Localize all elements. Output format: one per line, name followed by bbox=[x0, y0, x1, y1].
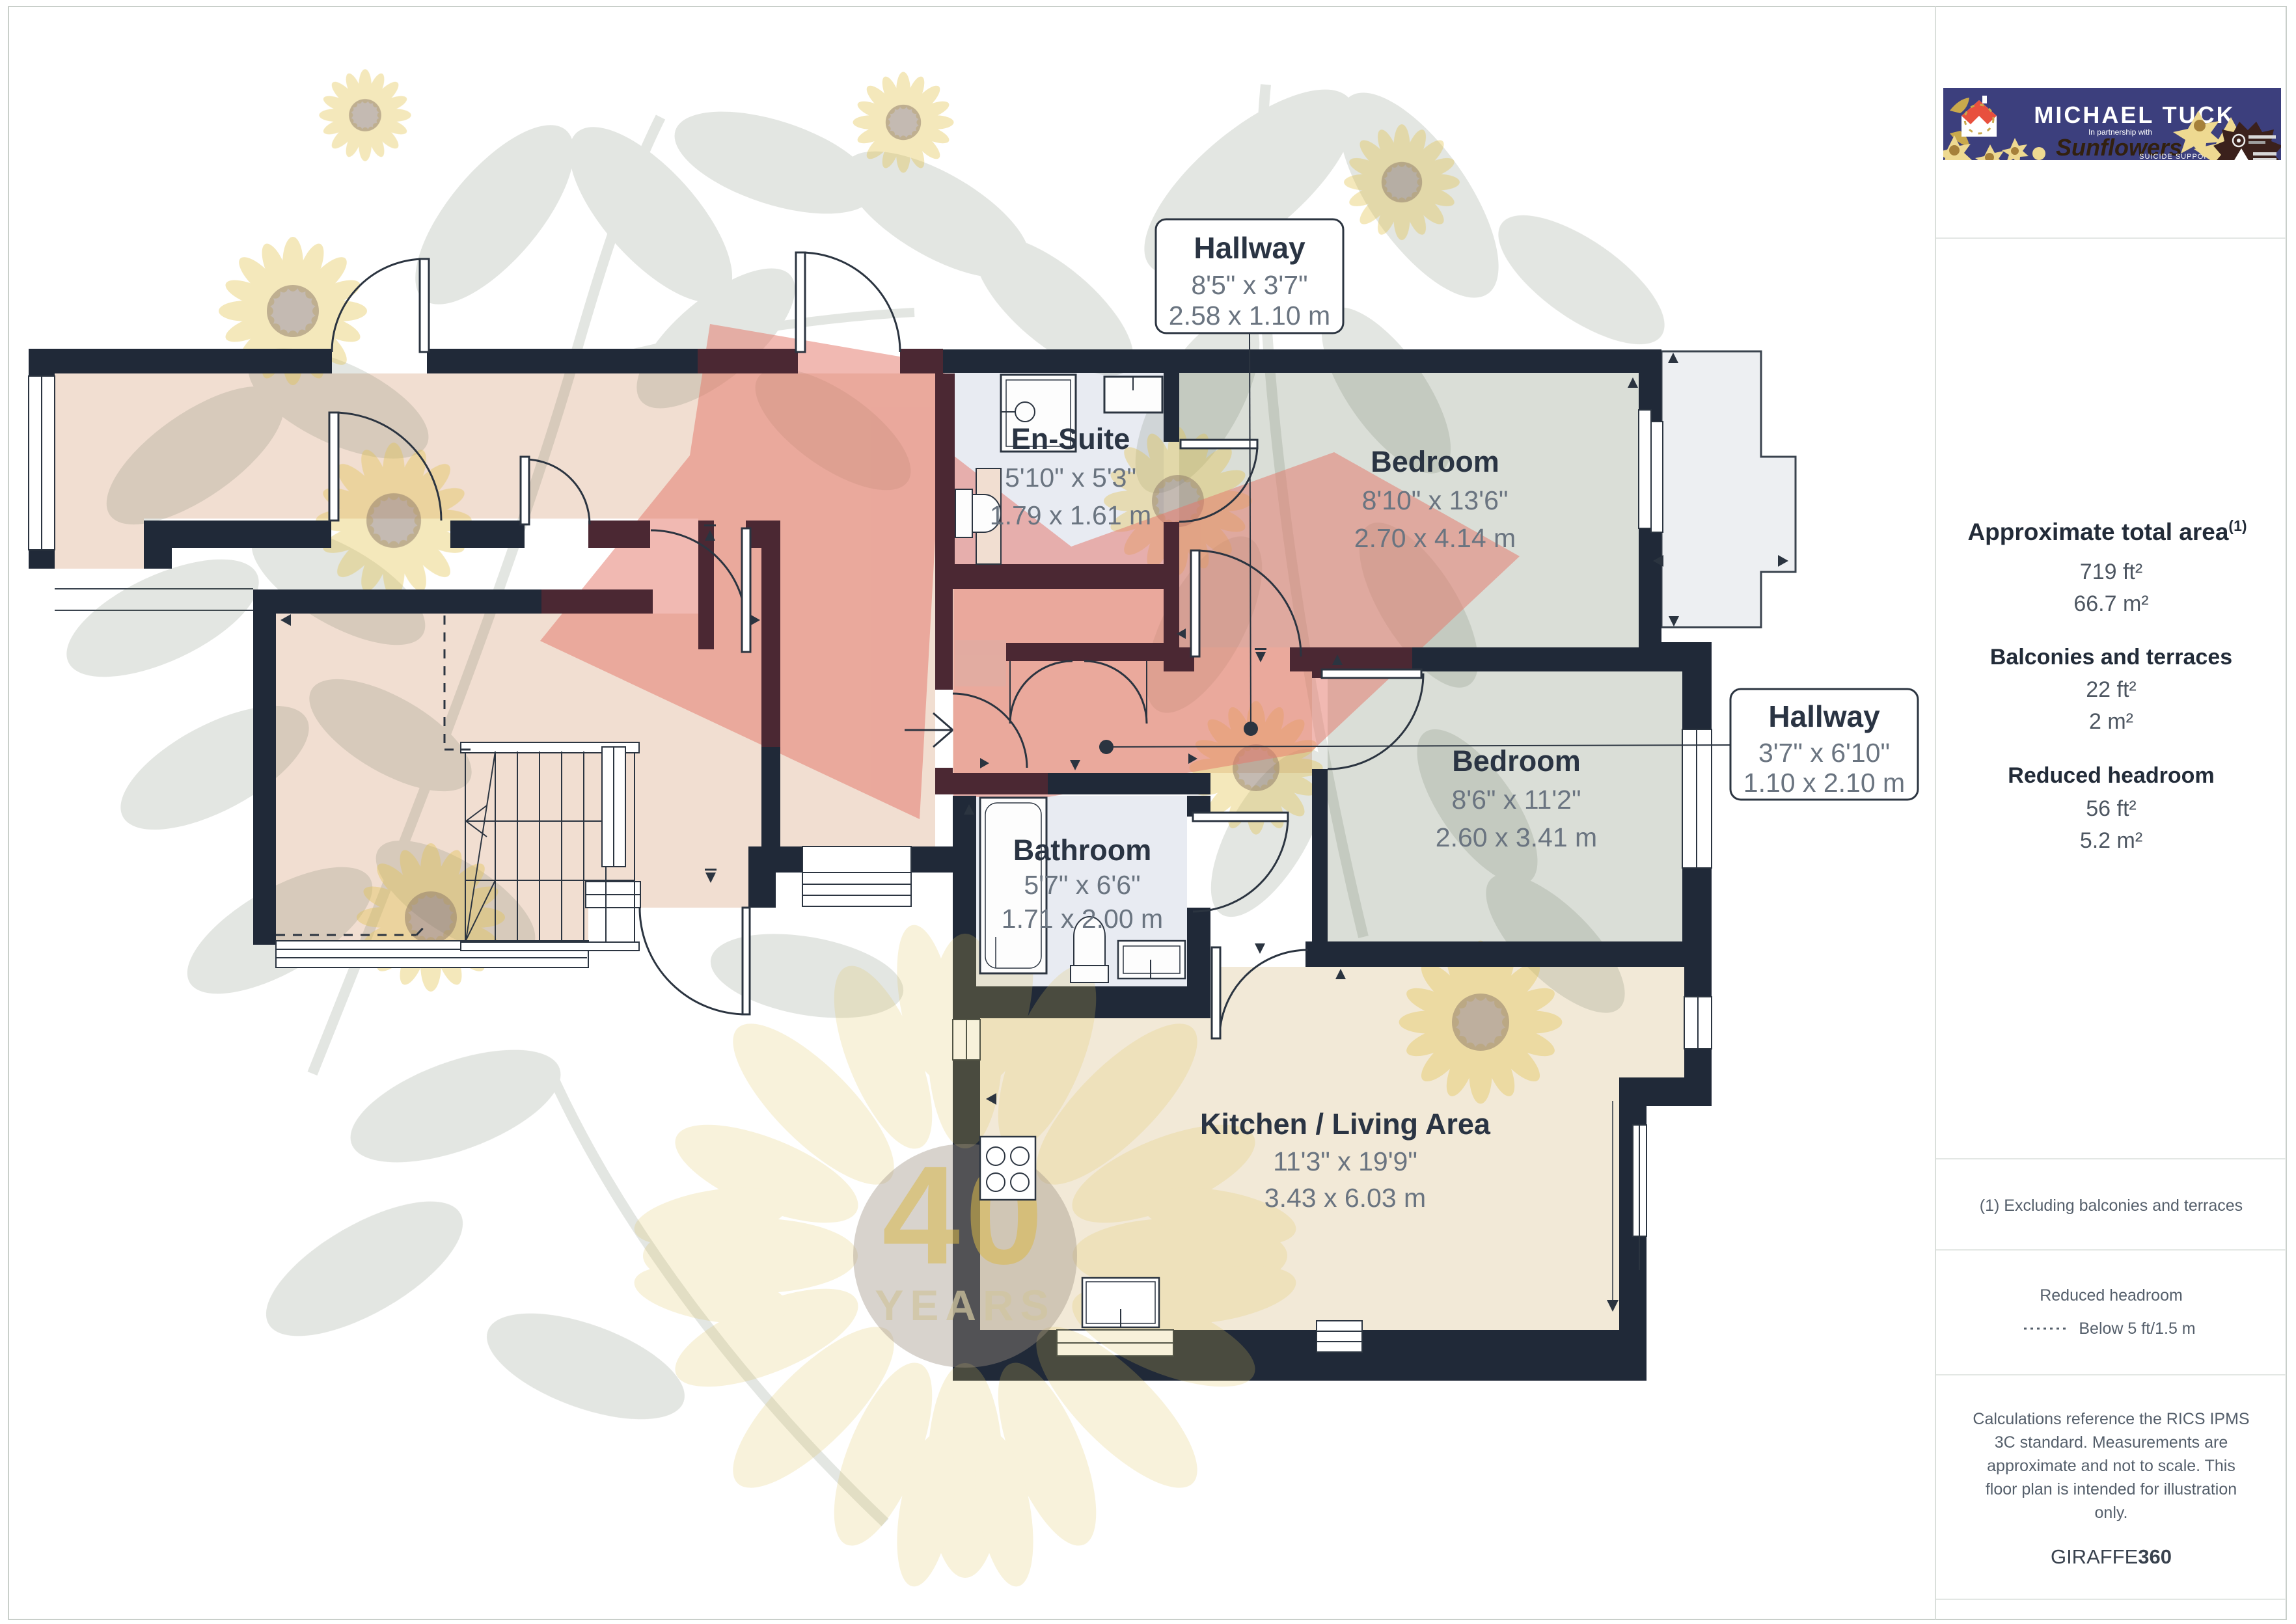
svg-text:3'7" x 6'10": 3'7" x 6'10" bbox=[1758, 738, 1890, 768]
svg-text:11'3" x 19'9": 11'3" x 19'9" bbox=[1273, 1146, 1417, 1176]
svg-text:22 ft²: 22 ft² bbox=[2086, 677, 2136, 702]
svg-text:Hallway: Hallway bbox=[1194, 231, 1305, 265]
svg-text:3C standard. Measurements are: 3C standard. Measurements are bbox=[1995, 1433, 2228, 1452]
svg-text:2.60 x 3.41 m: 2.60 x 3.41 m bbox=[1436, 822, 1597, 852]
svg-text:En-Suite: En-Suite bbox=[1011, 422, 1130, 455]
svg-text:Balconies and terraces: Balconies and terraces bbox=[1990, 645, 2232, 670]
svg-text:8'5" x 3'7": 8'5" x 3'7" bbox=[1191, 270, 1307, 300]
svg-text:5.2 m²: 5.2 m² bbox=[2080, 828, 2142, 853]
svg-text:Reduced headroom: Reduced headroom bbox=[2008, 763, 2214, 788]
svg-text:Reduced headroom: Reduced headroom bbox=[2040, 1286, 2183, 1305]
svg-text:YEARS: YEARS bbox=[875, 1281, 1055, 1329]
svg-text:66.7 m²: 66.7 m² bbox=[2073, 591, 2148, 616]
svg-text:only.: only. bbox=[2095, 1504, 2128, 1522]
svg-text:Kitchen / Living Area: Kitchen / Living Area bbox=[1200, 1107, 1491, 1141]
svg-text:8'6" x 11'2": 8'6" x 11'2" bbox=[1451, 785, 1581, 815]
svg-text:Calculations reference the RIC: Calculations reference the RICS IPMS bbox=[1973, 1410, 2249, 1428]
svg-text:GIRAFFE360: GIRAFFE360 bbox=[2051, 1545, 2172, 1568]
svg-text:1.71 x 2.00 m: 1.71 x 2.00 m bbox=[1002, 904, 1163, 934]
svg-text:(1) Excluding balconies and te: (1) Excluding balconies and terraces bbox=[1980, 1197, 2243, 1215]
svg-text:Below 5 ft/1.5 m: Below 5 ft/1.5 m bbox=[2079, 1319, 2195, 1338]
svg-text:Bedroom: Bedroom bbox=[1452, 744, 1581, 778]
svg-text:approximate and not to scale.: approximate and not to scale. This bbox=[1987, 1457, 2235, 1475]
svg-text:56 ft²: 56 ft² bbox=[2086, 796, 2136, 821]
svg-text:1.10 x 2.10 m: 1.10 x 2.10 m bbox=[1743, 768, 1905, 798]
svg-text:Approximate total area(1): Approximate total area(1) bbox=[1967, 517, 2247, 545]
svg-text:719 ft²: 719 ft² bbox=[2080, 560, 2142, 584]
svg-text:Hallway: Hallway bbox=[1768, 699, 1880, 733]
svg-text:2 m²: 2 m² bbox=[2089, 709, 2133, 734]
svg-text:Bedroom: Bedroom bbox=[1371, 445, 1499, 478]
svg-text:5'10" x 5'3": 5'10" x 5'3" bbox=[1005, 463, 1136, 493]
svg-text:Bathroom: Bathroom bbox=[1013, 833, 1152, 867]
svg-text:2.70 x 4.14 m: 2.70 x 4.14 m bbox=[1354, 523, 1516, 553]
svg-text:5'7" x 6'6": 5'7" x 6'6" bbox=[1024, 870, 1140, 900]
svg-text:8'10" x 13'6": 8'10" x 13'6" bbox=[1362, 485, 1509, 515]
svg-text:1.79 x 1.61 m: 1.79 x 1.61 m bbox=[990, 500, 1151, 530]
svg-text:3.43 x 6.03 m: 3.43 x 6.03 m bbox=[1264, 1183, 1426, 1213]
svg-text:2.58 x 1.10 m: 2.58 x 1.10 m bbox=[1169, 301, 1330, 331]
svg-text:floor plan is intended for ill: floor plan is intended for illustration bbox=[1986, 1480, 2237, 1498]
